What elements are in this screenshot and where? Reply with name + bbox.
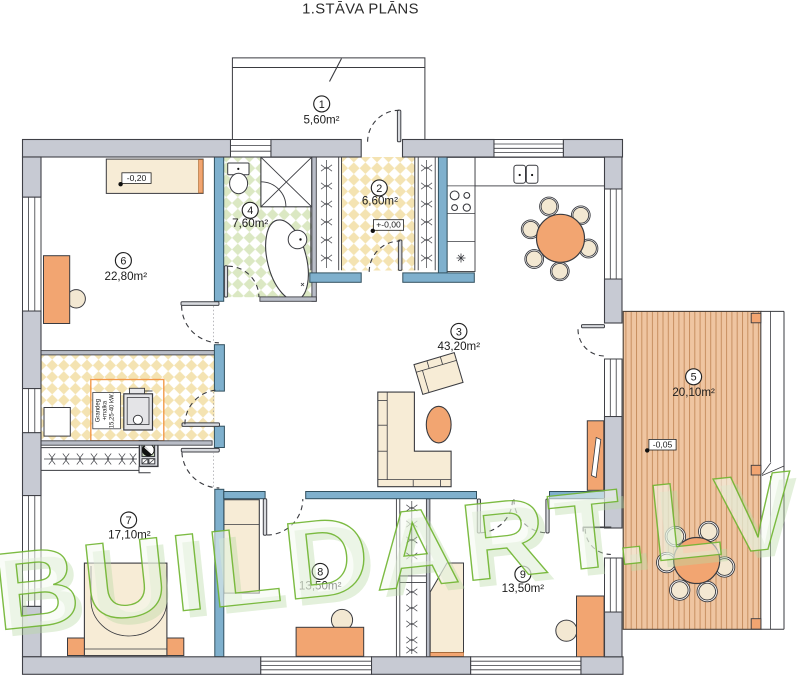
svg-text:5,60m²: 5,60m² [303,114,339,127]
svg-text:-0,05: -0,05 [653,439,673,449]
svg-text:20,10m²: 20,10m² [672,386,715,399]
svg-text:6,60m²: 6,60m² [362,195,398,208]
svg-text:1: 1 [319,99,325,111]
svg-text:2: 2 [376,183,382,195]
svg-text:-0,20: -0,20 [127,173,147,183]
svg-text:22,80m²: 22,80m² [105,270,148,283]
svg-text:+-0,00: +-0,00 [376,220,401,230]
svg-text:4: 4 [247,205,253,217]
svg-text:6: 6 [120,256,126,268]
svg-text:Grandeg: Grandeg [96,399,102,422]
svg-text:7,60m²: 7,60m² [232,217,268,230]
svg-text:5: 5 [691,372,697,384]
svg-text:1.STĀVA PLĀNS: 1.STĀVA PLĀNS [302,2,419,18]
svg-text:+malka: +malka [103,400,109,420]
svg-text:43,20m²: 43,20m² [438,340,481,353]
svg-text:15,25-40 kW.: 15,25-40 kW. [110,393,116,429]
svg-text:3: 3 [456,326,462,338]
